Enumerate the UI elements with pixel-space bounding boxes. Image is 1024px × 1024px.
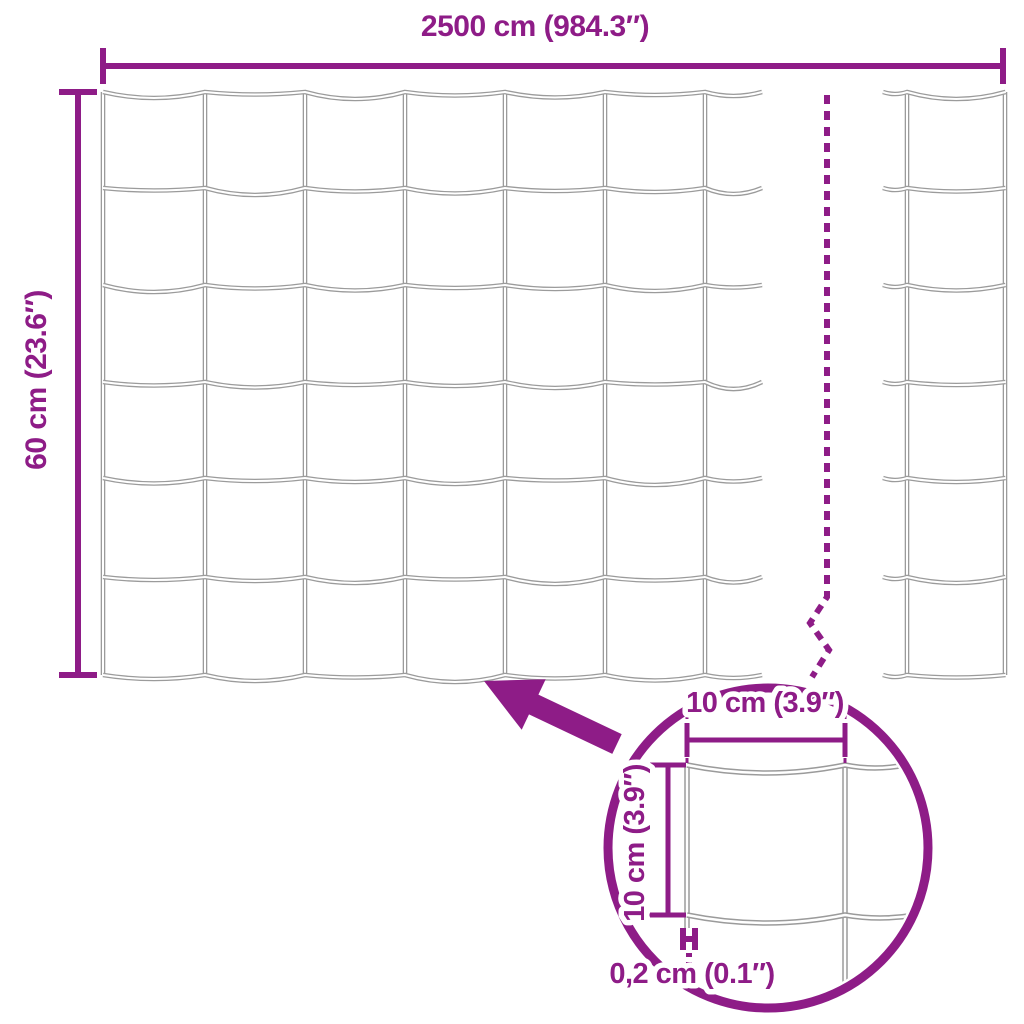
total-width-dimension: 2500 cm (984.3″)	[103, 10, 1003, 84]
cell-width-dimension	[687, 714, 845, 765]
wire-thickness-label: 0,2 cm (0.1″)	[609, 958, 774, 990]
total-width-label: 2500 cm (984.3″)	[421, 10, 649, 43]
break-line	[810, 95, 829, 677]
detail-mesh-cell	[687, 765, 915, 985]
detail-view: 10 cm (3.9″) 10 cm (3.9″) 0,2 cm (0.1″)	[608, 687, 928, 1008]
cell-width-label: 10 cm (3.9″)	[686, 687, 844, 719]
fence-mesh-left-section	[103, 92, 762, 682]
diagram-canvas: 2500 cm (984.3″) 60 cm (23.6″)	[0, 0, 1024, 1024]
cell-height-label: 10 cm (3.9″)	[619, 764, 651, 922]
fence-dimension-diagram: 2500 cm (984.3″) 60 cm (23.6″)	[0, 0, 1024, 1024]
detail-pointer-arrow-icon	[484, 679, 622, 754]
total-height-dimension: 60 cm (23.6″)	[20, 92, 97, 675]
fence-mesh-right-section	[883, 92, 1006, 678]
total-height-label: 60 cm (23.6″)	[20, 290, 53, 470]
